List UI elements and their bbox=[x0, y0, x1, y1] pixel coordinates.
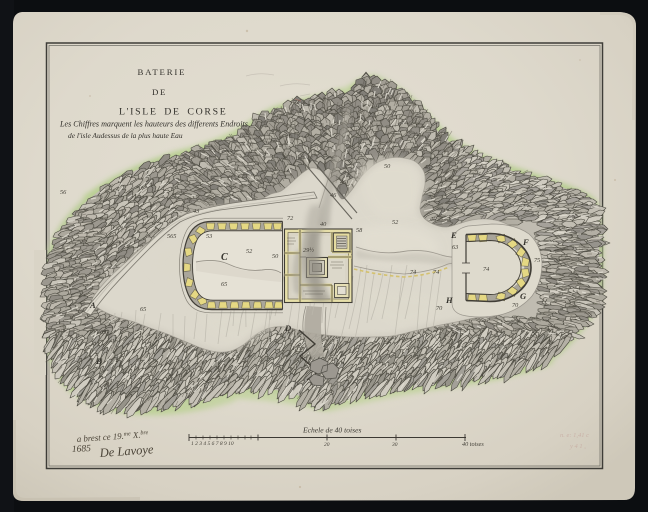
svg-text:46: 46 bbox=[424, 164, 431, 171]
svg-text:1685: 1685 bbox=[72, 444, 92, 455]
svg-text:70: 70 bbox=[512, 302, 519, 309]
svg-text:74: 74 bbox=[483, 266, 489, 273]
svg-text:1 2 3 4 5 6 7 8 9 10: 1 2 3 4 5 6 7 8 9 10 bbox=[191, 440, 234, 447]
svg-text:65: 65 bbox=[221, 281, 227, 288]
svg-text:L'ISLE DE CORSE: L'ISLE DE CORSE bbox=[119, 107, 227, 118]
svg-text:20: 20 bbox=[324, 442, 330, 448]
svg-text:n. e: 1,41 c: n. e: 1,41 c bbox=[560, 432, 589, 439]
svg-text:F: F bbox=[522, 237, 529, 247]
svg-text:46: 46 bbox=[430, 216, 437, 223]
svg-text:y 4 1 ,: y 4 1 , bbox=[569, 443, 586, 450]
svg-text:53: 53 bbox=[206, 233, 212, 240]
svg-text:52: 52 bbox=[392, 219, 399, 226]
svg-text:65: 65 bbox=[140, 306, 146, 313]
svg-text:H: H bbox=[445, 295, 453, 305]
svg-text:DE: DE bbox=[152, 87, 167, 97]
svg-text:50: 50 bbox=[384, 163, 391, 170]
svg-text:52: 52 bbox=[246, 248, 253, 255]
svg-text:56: 56 bbox=[60, 189, 67, 196]
svg-text:58: 58 bbox=[356, 227, 363, 234]
svg-text:E: E bbox=[450, 230, 457, 240]
svg-text:D: D bbox=[284, 323, 291, 333]
svg-text:29½: 29½ bbox=[303, 247, 314, 254]
svg-text:Les Chiffres marquent les haut: Les Chiffres marquent les hauteurs des d… bbox=[59, 120, 248, 129]
svg-text:Echele de 40 toises: Echele de 40 toises bbox=[302, 426, 361, 435]
svg-text:B: B bbox=[95, 356, 102, 366]
svg-text:74: 74 bbox=[433, 269, 439, 276]
svg-text:G: G bbox=[520, 291, 527, 301]
svg-text:13½: 13½ bbox=[292, 345, 303, 352]
svg-text:30: 30 bbox=[391, 442, 398, 448]
svg-text:BATERIE: BATERIE bbox=[138, 67, 187, 77]
svg-text:40: 40 bbox=[320, 221, 327, 228]
svg-text:46: 46 bbox=[340, 179, 347, 186]
svg-text:63: 63 bbox=[452, 244, 458, 251]
svg-text:46: 46 bbox=[330, 192, 337, 199]
svg-text:de l'isle Audessus de la plus: de l'isle Audessus de la plus haute Eau bbox=[68, 131, 183, 140]
svg-text:A: A bbox=[89, 300, 96, 310]
svg-text:72: 72 bbox=[287, 215, 294, 222]
svg-text:565: 565 bbox=[167, 233, 176, 240]
svg-text:43: 43 bbox=[193, 208, 199, 215]
svg-text:50: 50 bbox=[272, 253, 279, 260]
svg-text:40 toises: 40 toises bbox=[462, 441, 484, 448]
svg-text:70: 70 bbox=[436, 305, 443, 312]
svg-text:74: 74 bbox=[410, 269, 416, 276]
svg-text:65: 65 bbox=[100, 329, 106, 336]
svg-text:C: C bbox=[221, 252, 228, 263]
svg-text:75: 75 bbox=[534, 257, 540, 264]
